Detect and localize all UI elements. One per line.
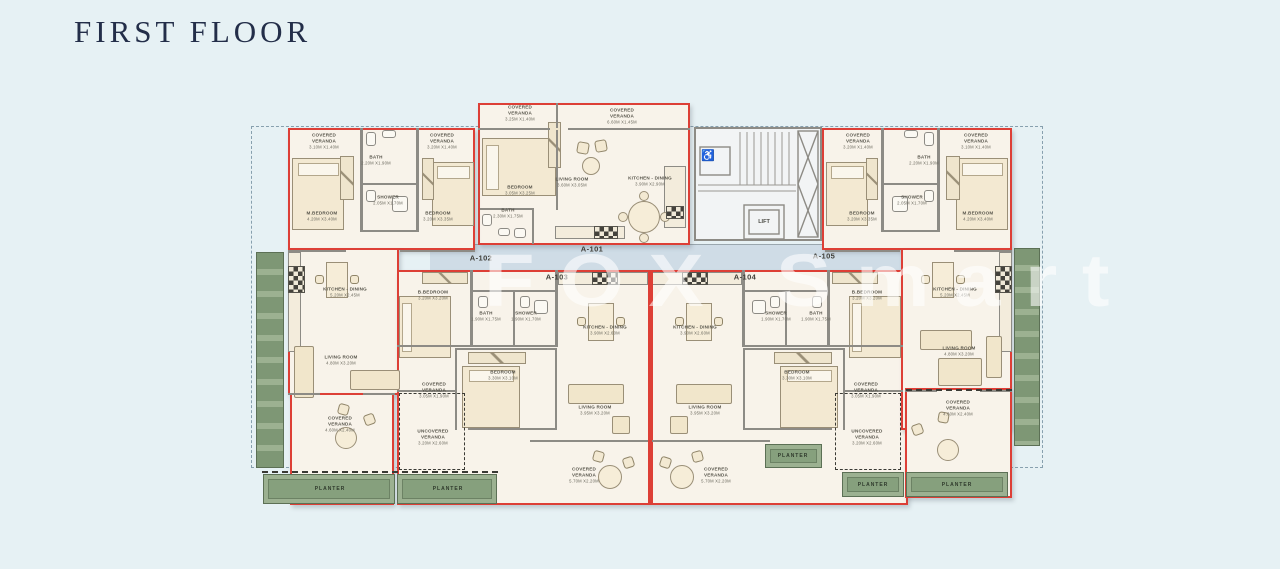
- sofa-icon: [986, 336, 1002, 378]
- wall-segment: [530, 440, 648, 442]
- room-label: KITCHEN - DINING5.20m x2.45m: [322, 286, 368, 297]
- wheelchair-accessible-icon: ♿: [701, 149, 715, 162]
- wall-segment: [397, 345, 473, 347]
- room-label: COVERED VERANDA3.05m x1.90m: [843, 381, 889, 398]
- room-label: B.BEDROOM3.20m x3.20m: [410, 289, 456, 300]
- room-label: BEDROOM3.30m x3.10m: [774, 369, 820, 380]
- wardrobe-icon: [774, 352, 832, 364]
- bathroom-fixture-icon: [382, 130, 396, 138]
- planter-label: PLANTER: [315, 486, 346, 492]
- room-label: SHOWER2.05m x1.70m: [889, 194, 935, 205]
- chair-icon: [576, 141, 590, 155]
- floor-plan: ♿ LIFT FOX Smart COVERED VERANDA3.25m x1…: [0, 0, 1280, 569]
- lift-label: LIFT: [758, 219, 770, 225]
- room-label: BEDROOM3.20m x3.35m: [839, 210, 885, 221]
- sofa-icon: [568, 384, 624, 404]
- room-label: LIVING ROOM4.80m x3.20m: [318, 354, 364, 365]
- chair-icon: [594, 139, 608, 153]
- planter-label: PLANTER: [858, 482, 889, 488]
- wall-segment: [744, 428, 832, 430]
- wall-segment: [743, 348, 745, 430]
- wall-segment: [556, 130, 558, 210]
- wardrobe-icon: [340, 156, 354, 200]
- planter-label: PLANTER: [942, 482, 973, 488]
- room-label: KITCHEN - DINING3.90m x2.60m: [582, 324, 628, 335]
- room-label: LIVING ROOM3.95m x3.20m: [572, 404, 618, 415]
- wall-segment: [882, 183, 940, 185]
- sofa-icon: [294, 346, 314, 398]
- room-label: COVERED VERANDA5.70m x2.20m: [561, 466, 607, 483]
- stove-hob-icon: [666, 206, 684, 219]
- planter-left-column: [256, 252, 284, 468]
- planter-label: PLANTER: [433, 486, 464, 492]
- bed-icon: [399, 296, 451, 358]
- wall-segment: [745, 345, 827, 347]
- round-table-icon: [937, 439, 959, 461]
- bathroom-fixture-icon: [514, 228, 526, 238]
- room-label: KITCHEN - DINING3.90m x2.90m: [627, 175, 673, 186]
- wall-segment: [556, 103, 558, 128]
- room-label: KITCHEN - DINING3.90m x2.60m: [672, 324, 718, 335]
- chair-icon: [618, 212, 628, 222]
- wall-segment: [455, 348, 555, 350]
- wardrobe-icon: [946, 156, 960, 200]
- sofa-icon: [670, 416, 688, 434]
- round-table-icon: [670, 465, 694, 489]
- sofa-icon: [938, 358, 982, 386]
- wall-segment: [937, 128, 940, 232]
- veranda-boundary-line: [906, 389, 1012, 391]
- room-label: COVERED VERANDA3.10m x1.40m: [953, 132, 999, 149]
- room-label: LIVING ROOM3.95m x3.20m: [682, 404, 728, 415]
- room-label: COVERED VERANDA3.05m x1.90m: [411, 381, 457, 398]
- wall-segment: [555, 348, 557, 430]
- wardrobe-icon: [422, 158, 434, 200]
- sofa-icon: [612, 416, 630, 434]
- bathroom-fixture-icon: [904, 130, 918, 138]
- wall-segment: [360, 128, 363, 232]
- wall-segment: [745, 348, 845, 350]
- wall-segment: [288, 393, 320, 395]
- wall-segment: [288, 250, 346, 252]
- planter-label: PLANTER: [778, 453, 809, 459]
- room-label: COVERED VERANDA4.60m x2.40m: [317, 415, 363, 432]
- round-table-icon: [628, 201, 660, 233]
- wall-segment: [360, 183, 418, 185]
- room-label: COVERED VERANDA3.10m x1.40m: [301, 132, 347, 149]
- room-label: COVERED VERANDA6.60m x1.45m: [599, 107, 645, 124]
- wall-segment: [652, 440, 770, 442]
- wardrobe-icon: [422, 272, 468, 284]
- stove-hob-icon: [288, 266, 305, 293]
- bathroom-fixture-icon: [924, 132, 934, 146]
- room-label: UNCOVERED VERANDA3.20m x2.60m: [844, 428, 890, 445]
- bathroom-fixture-icon: [498, 228, 510, 236]
- wall-segment: [363, 393, 395, 395]
- wall-segment: [468, 428, 556, 430]
- room-label: M.BEDROOM4.20m x3.40m: [299, 210, 345, 221]
- room-label: SHOWER2.05m x1.70m: [365, 194, 411, 205]
- room-label: LIVING ROOM3.60m x3.05m: [549, 176, 595, 187]
- room-label: LIVING ROOM4.80m x3.20m: [936, 345, 982, 356]
- veranda-boundary-line: [262, 471, 498, 473]
- page: { "page": { "title": "FIRST FLOOR", "wat…: [0, 0, 1280, 569]
- room-label: COVERED VERANDA4.60m x2.40m: [935, 399, 981, 416]
- chair-icon: [639, 191, 649, 201]
- wardrobe-icon: [866, 158, 878, 200]
- room-label: BATH2.20m x1.90m: [353, 154, 399, 165]
- wall-segment: [568, 128, 690, 130]
- room-label: BEDROOM3.30m x3.10m: [480, 369, 526, 380]
- room-label: COVERED VERANDA3.25m x1.40m: [497, 104, 543, 121]
- sofa-icon: [350, 370, 400, 390]
- room-label: M.BEDROOM4.20m x3.40m: [955, 210, 1001, 221]
- chair-icon: [315, 275, 324, 284]
- wall-segment: [470, 270, 473, 345]
- wall-segment: [882, 230, 940, 232]
- sofa-icon: [676, 384, 732, 404]
- room-label: BATH2.30m x1.75m: [485, 207, 531, 218]
- room-label: BATH2.20m x1.90m: [901, 154, 947, 165]
- wardrobe-icon: [468, 352, 526, 364]
- chair-icon: [350, 275, 359, 284]
- wall-segment: [478, 128, 550, 130]
- room-label: BEDROOM3.05m x3.25m: [497, 184, 543, 195]
- room-label: BEDROOM3.20m x3.35m: [415, 210, 461, 221]
- wall-segment: [360, 230, 418, 232]
- room-label: COVERED VERANDA3.20m x1.40m: [419, 132, 465, 149]
- room-label: COVERED VERANDA5.70m x2.20m: [693, 466, 739, 483]
- room-label: UNCOVERED VERANDA3.20m x2.60m: [410, 428, 456, 445]
- wall-segment: [827, 345, 903, 347]
- watermark: FOX Smart: [484, 238, 1134, 323]
- wall-segment: [400, 250, 475, 252]
- wall-segment: [473, 345, 555, 347]
- room-label: COVERED VERANDA3.20m x1.40m: [835, 132, 881, 149]
- bathroom-fixture-icon: [366, 132, 376, 146]
- round-table-icon: [582, 157, 600, 175]
